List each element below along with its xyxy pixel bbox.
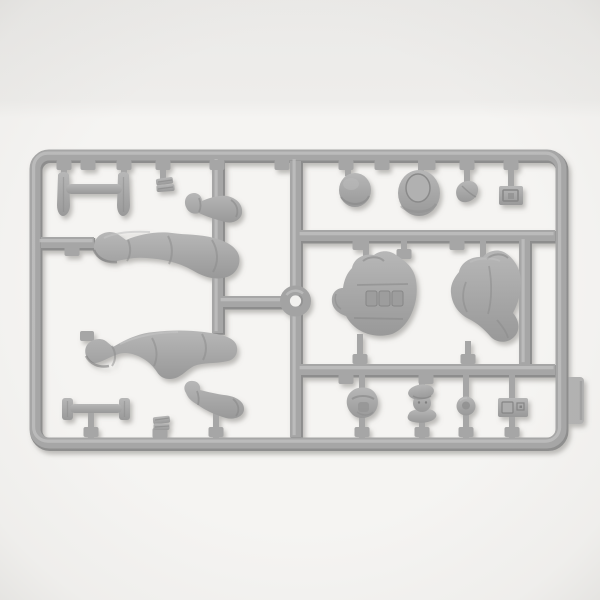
- photo-canvas: [0, 0, 600, 600]
- sprue-photo: [0, 0, 600, 600]
- vignette-overlay: [0, 0, 600, 600]
